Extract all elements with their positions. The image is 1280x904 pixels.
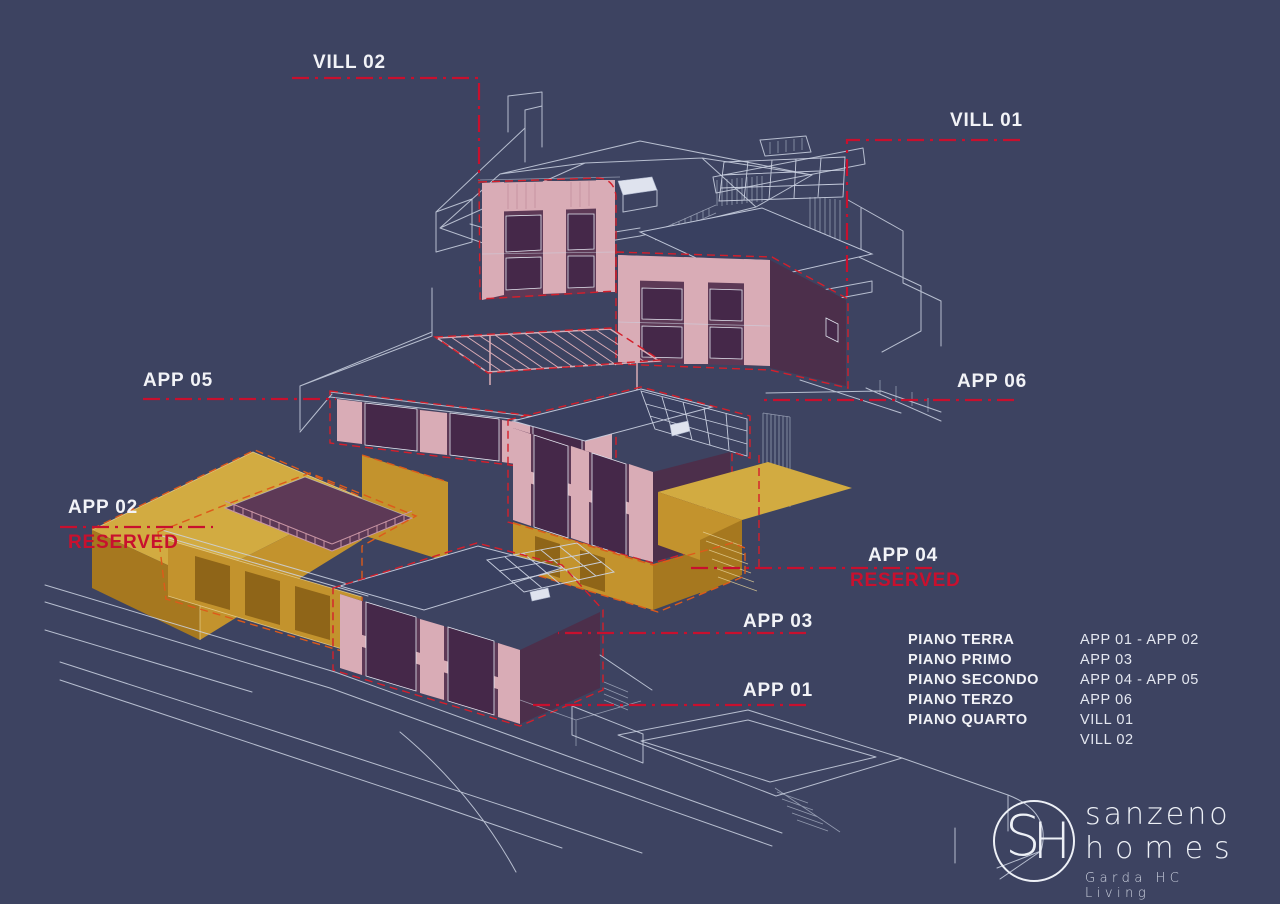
legend-units: VILL 01 [1080,710,1134,730]
status-app02-reserved: RESERVED [68,532,179,554]
unit-vill02-shape[interactable] [478,177,620,300]
legend-units: APP 06 [1080,690,1133,710]
logo-monogram: H [1033,812,1071,870]
brand-logo: S H sanzeno homes Garda HC Living [993,798,1253,894]
label-app06[interactable]: APP 06 [957,371,1027,393]
brand-name-line2: homes [1085,832,1253,866]
legend-units: APP 03 [1080,650,1133,670]
label-app05[interactable]: APP 05 [143,370,213,392]
legend-floor: PIANO QUARTO [908,710,1080,730]
brand-tagline: Garda HC Living [1085,871,1253,901]
floor-legend: PIANO TERRAAPP 01 - APP 02 PIANO PRIMOAP… [908,630,1199,750]
site-plan-canvas: VILL 02 VILL 01 APP 05 APP 06 APP 02 RES… [0,0,1280,904]
legend-floor: PIANO TERZO [908,690,1080,710]
brand-name-line1: sanzeno [1085,798,1253,832]
legend-units: VILL 02 [1080,730,1134,750]
label-app04[interactable]: APP 04 [868,545,938,567]
legend-row: PIANO TERRAAPP 01 - APP 02 [908,630,1199,650]
legend-row: PIANO QUARTOVILL 01 [908,710,1199,730]
label-vill01[interactable]: VILL 01 [950,110,1023,132]
label-app03[interactable]: APP 03 [743,611,813,633]
legend-floor: PIANO PRIMO [908,650,1080,670]
label-app02[interactable]: APP 02 [68,497,138,519]
legend-row: PIANO TERZOAPP 06 [908,690,1199,710]
legend-floor: PIANO TERRA [908,630,1080,650]
label-app01[interactable]: APP 01 [743,680,813,702]
site-axonometric-drawing [0,0,1280,904]
label-vill02[interactable]: VILL 02 [313,52,386,74]
status-app04-reserved: RESERVED [850,570,961,592]
legend-row: PIANO SECONDOAPP 04 - APP 05 [908,670,1199,690]
legend-row: VILL 02 [908,730,1199,750]
legend-units: APP 04 - APP 05 [1080,670,1199,690]
legend-units: APP 01 - APP 02 [1080,630,1199,650]
legend-row: PIANO PRIMOAPP 03 [908,650,1199,670]
unit-vill01-shape[interactable] [616,157,872,388]
legend-floor: PIANO SECONDO [908,670,1080,690]
